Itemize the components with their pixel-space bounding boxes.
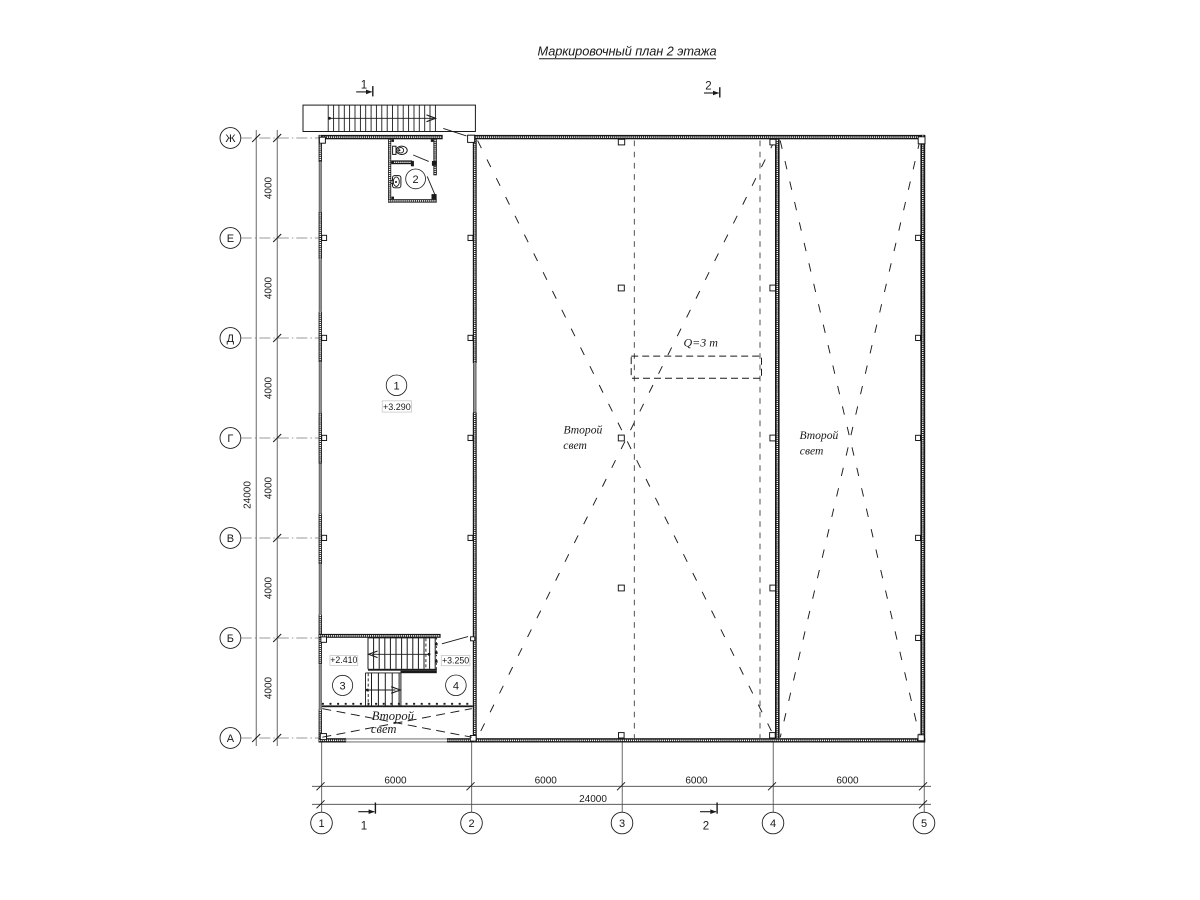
svg-text:4: 4 — [453, 680, 459, 692]
svg-text:В: В — [227, 533, 234, 545]
svg-text:Б: Б — [227, 633, 234, 645]
svg-text:5: 5 — [921, 818, 927, 830]
svg-text:24000: 24000 — [243, 481, 254, 509]
svg-text:1: 1 — [318, 818, 324, 830]
svg-text:2: 2 — [468, 818, 474, 830]
svg-text:+3.250: +3.250 — [442, 656, 469, 666]
svg-text:Маркировочный план 2 этажа: Маркировочный план 2 этажа — [537, 44, 716, 59]
svg-text:Второй: Второй — [800, 429, 839, 442]
svg-text:1: 1 — [393, 380, 399, 392]
svg-text:6000: 6000 — [685, 776, 708, 787]
svg-text:Д: Д — [227, 333, 235, 345]
svg-text:4000: 4000 — [264, 376, 275, 399]
svg-text:6000: 6000 — [535, 776, 558, 787]
svg-text:4: 4 — [770, 818, 776, 830]
svg-text:Q=3 т: Q=3 т — [684, 335, 719, 349]
svg-text:4000: 4000 — [264, 476, 275, 499]
svg-text:Второй: Второй — [564, 423, 603, 436]
svg-text:Г: Г — [227, 433, 233, 445]
svg-text:24000: 24000 — [579, 794, 607, 805]
svg-text:свет: свет — [800, 444, 824, 457]
svg-text:4000: 4000 — [264, 676, 275, 699]
svg-text:4000: 4000 — [264, 576, 275, 599]
svg-text:Е: Е — [227, 233, 234, 245]
svg-text:свет: свет — [563, 439, 587, 452]
svg-text:+2.410: +2.410 — [330, 655, 357, 665]
svg-text:2: 2 — [703, 821, 709, 833]
svg-text:6000: 6000 — [836, 776, 859, 787]
svg-text:3: 3 — [619, 818, 625, 830]
svg-text:1: 1 — [361, 80, 367, 92]
svg-text:1: 1 — [361, 821, 367, 833]
svg-text:4000: 4000 — [264, 276, 275, 299]
svg-text:Ж: Ж — [225, 133, 235, 145]
svg-text:2: 2 — [413, 174, 419, 186]
svg-text:2: 2 — [705, 81, 711, 93]
svg-text:3: 3 — [340, 681, 346, 693]
svg-text:свет: свет — [371, 722, 397, 736]
svg-text:А: А — [227, 733, 235, 745]
svg-text:+3.290: +3.290 — [383, 402, 411, 412]
svg-text:6000: 6000 — [384, 776, 407, 787]
svg-text:4000: 4000 — [264, 176, 275, 199]
